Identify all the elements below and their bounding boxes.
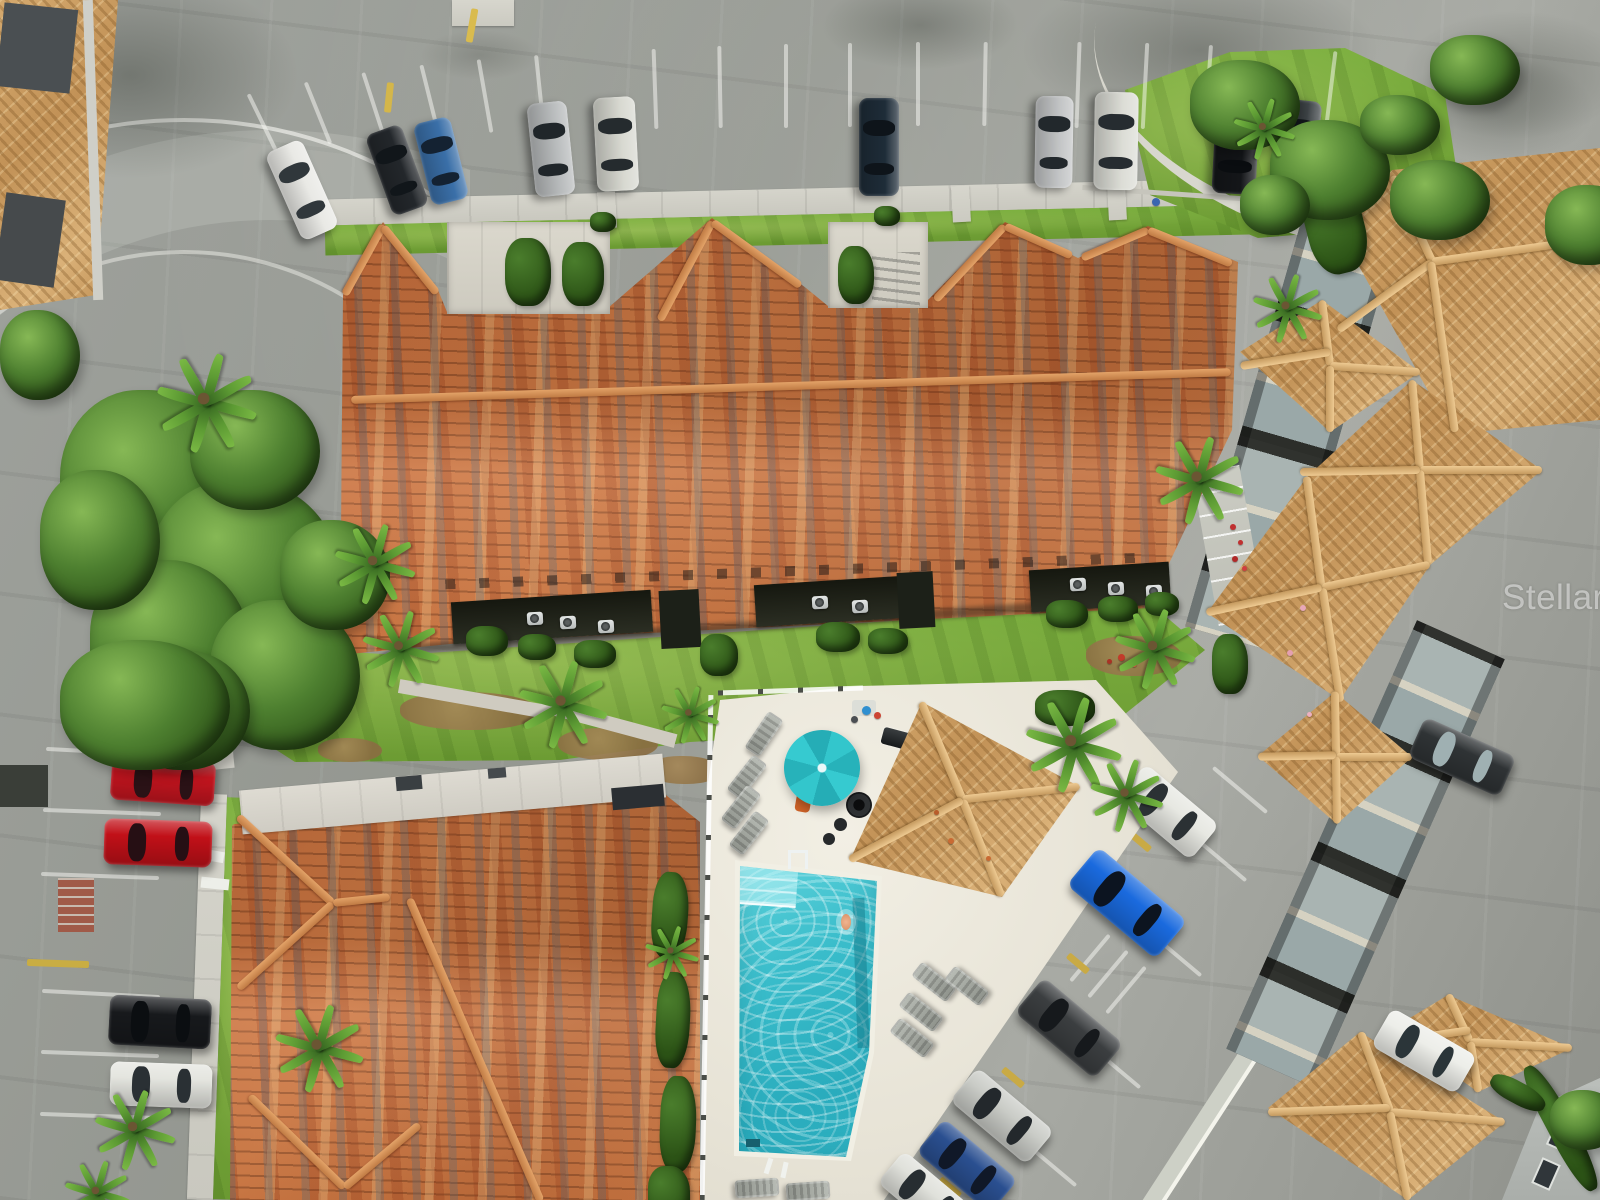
- ac-unit: [527, 612, 544, 626]
- flat-roof-section: [0, 2, 78, 93]
- curb-marking: [1001, 1066, 1025, 1088]
- gray-car: [1014, 977, 1123, 1079]
- rear-window: [1129, 900, 1165, 939]
- ac-unit: [1108, 582, 1125, 596]
- silver-suv: [526, 100, 576, 198]
- windshield: [1391, 1022, 1423, 1062]
- skylight: [488, 767, 507, 779]
- palm-crown: [667, 947, 673, 953]
- rear-window: [1470, 748, 1495, 784]
- windshield: [420, 134, 454, 155]
- tree-canopy: [40, 470, 160, 610]
- hedge: [562, 242, 604, 306]
- palm-crown: [198, 393, 210, 405]
- entry-path: [951, 186, 971, 223]
- rear-window: [537, 162, 569, 177]
- palm-crown: [1281, 301, 1289, 309]
- skylight: [395, 775, 422, 791]
- rear-window: [175, 826, 190, 861]
- mulch-bed: [318, 738, 382, 762]
- windshield: [1098, 113, 1134, 130]
- swimmer: [841, 914, 851, 930]
- detail-dot: [1107, 659, 1112, 664]
- parking-stall-line: [848, 43, 852, 127]
- windshield: [1039, 116, 1070, 132]
- propane-tank: [834, 818, 847, 831]
- roof-ridge: [1330, 691, 1339, 756]
- palm-crown: [311, 1039, 321, 1049]
- palm-crown: [1191, 471, 1201, 481]
- rear-window: [1071, 1025, 1104, 1060]
- detail-dot: [1118, 654, 1125, 661]
- windshield: [532, 121, 566, 140]
- detail-dot: [1300, 605, 1306, 611]
- windshield: [895, 1166, 929, 1200]
- windshield: [969, 1084, 1005, 1123]
- ac-unit: [1070, 578, 1087, 592]
- detail-dot: [1230, 524, 1236, 530]
- tree-canopy: [1360, 95, 1440, 155]
- windshield: [130, 1000, 149, 1042]
- rear-window: [1218, 159, 1252, 174]
- parking-stall-line: [982, 42, 987, 126]
- rear-window: [1429, 1044, 1457, 1079]
- detail-dot: [1238, 540, 1243, 545]
- roof-ridge: [1326, 366, 1334, 432]
- hedge: [874, 206, 900, 226]
- solar-panel: [611, 784, 665, 810]
- detail-dot: [948, 838, 954, 844]
- curb-marking: [27, 959, 89, 968]
- hedge: [505, 238, 551, 306]
- palm-crown: [368, 556, 377, 565]
- detail-dot: [851, 716, 858, 723]
- rear-window: [430, 171, 461, 189]
- hedge: [1098, 596, 1138, 622]
- palm-crown: [92, 1187, 100, 1195]
- rear-window: [864, 163, 894, 176]
- parking-stall-line: [717, 46, 722, 128]
- navy-car: [859, 98, 899, 196]
- palm-crown: [1065, 735, 1076, 746]
- parking-stall-line: [1212, 766, 1268, 814]
- detail-dot: [934, 810, 939, 815]
- tree-canopy: [1240, 175, 1310, 235]
- hedge: [838, 246, 874, 304]
- palm-crown: [555, 695, 565, 705]
- windshield: [374, 142, 408, 166]
- windshield: [276, 159, 313, 187]
- hedge: [816, 622, 860, 652]
- tree-canopy: [60, 640, 230, 770]
- hedge: [700, 634, 738, 676]
- detail-dot: [874, 712, 881, 719]
- windshield: [935, 1135, 971, 1173]
- pool-drain: [746, 1139, 760, 1147]
- white-car: [109, 1061, 212, 1109]
- aerial-photo: StellarMLS: [0, 0, 1600, 1200]
- rear-window: [1039, 156, 1068, 168]
- windshield: [1089, 866, 1130, 910]
- roof-ridge: [1420, 466, 1542, 474]
- pool-ladder: [788, 850, 808, 869]
- detail-dot: [986, 856, 991, 861]
- palm-crown: [394, 641, 403, 650]
- brick-path: [58, 878, 94, 932]
- rear-window: [1099, 156, 1133, 169]
- ac-unit: [852, 600, 869, 614]
- windshield: [1035, 995, 1073, 1035]
- detail-dot: [1232, 556, 1238, 562]
- breezeway-entrance: [897, 571, 936, 629]
- propane-tank: [823, 833, 835, 845]
- rear-window: [601, 158, 634, 172]
- rear-window: [177, 1069, 191, 1103]
- parking-stall-line: [652, 49, 659, 129]
- detail-dot: [862, 706, 871, 715]
- ac-unit: [560, 616, 577, 630]
- hedge: [518, 634, 556, 660]
- rear-window: [294, 198, 327, 222]
- hedge: [1046, 600, 1088, 628]
- detail-dot: [1287, 650, 1293, 656]
- rear-window: [968, 1163, 999, 1197]
- parking-stall-line: [43, 808, 161, 816]
- hedge: [574, 640, 616, 668]
- red-car: [103, 818, 213, 868]
- hedge: [466, 626, 508, 656]
- lounge-chair: [734, 1177, 779, 1198]
- ac-unit: [812, 596, 829, 610]
- rear-window: [175, 1004, 190, 1043]
- roof-ridge: [1336, 753, 1412, 761]
- rear-window: [178, 765, 194, 799]
- roof-ridge: [1258, 751, 1336, 760]
- rear-window: [388, 178, 419, 198]
- tree-canopy: [1430, 35, 1520, 105]
- hedge: [1212, 634, 1248, 694]
- palm-crown: [1148, 641, 1157, 650]
- parking-stall-line: [916, 42, 920, 126]
- black-suv: [108, 994, 212, 1049]
- windshield: [597, 117, 632, 135]
- watermark: StellarMLS: [1502, 578, 1600, 618]
- lounge-chair: [785, 1180, 830, 1200]
- hedge: [868, 628, 908, 654]
- rear-window: [927, 1193, 957, 1200]
- palm-crown: [1259, 123, 1266, 130]
- dumpster-pad: [0, 765, 48, 807]
- umbrella-table: [846, 792, 872, 818]
- utility-shed: [452, 0, 514, 26]
- hedge: [590, 212, 616, 232]
- windshield: [1429, 729, 1459, 769]
- rear-window: [1169, 808, 1201, 843]
- stairs: [872, 252, 920, 306]
- detail-dot: [1242, 566, 1247, 571]
- palm-crown: [128, 1122, 137, 1131]
- pool-bench: [852, 898, 869, 1048]
- white-suv: [593, 96, 640, 192]
- windshield: [863, 120, 896, 137]
- detail-dot: [1307, 712, 1312, 717]
- rear-window: [1004, 1113, 1035, 1147]
- detail-dot: [1152, 198, 1160, 206]
- ac-unit: [598, 620, 615, 634]
- roof-ridge: [1331, 756, 1340, 823]
- tree-canopy: [1550, 1090, 1600, 1150]
- silver-car: [1034, 96, 1074, 189]
- parking-stall-line: [784, 44, 788, 128]
- parking-stall-line: [41, 1050, 159, 1058]
- windshield: [127, 823, 147, 861]
- palm-crown: [1120, 788, 1129, 797]
- white-suv: [1093, 92, 1139, 191]
- palm-crown: [685, 709, 692, 716]
- tree-canopy: [1390, 160, 1490, 240]
- breezeway-entrance: [659, 589, 702, 649]
- tree-canopy: [0, 310, 80, 400]
